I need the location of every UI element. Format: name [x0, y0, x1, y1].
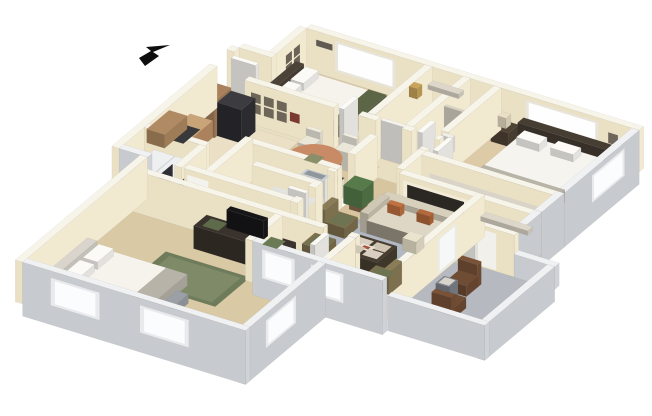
bed2-tv-east-face — [264, 218, 268, 240]
entry-direction-arrow — [139, 45, 170, 66]
bedroom2-west-wall-south-face — [15, 260, 22, 304]
balcony-south-parapet-east-face — [485, 322, 490, 361]
floorplan-3d-render — [0, 0, 652, 416]
floorplan-canvas — [0, 0, 652, 416]
living-south-wall-east-face — [382, 277, 387, 335]
balcony-north-parapet-east-face — [555, 263, 560, 290]
bedroom2-closet-west-wall-south-face — [245, 239, 252, 283]
hall-north-wall-a-east-face — [334, 104, 339, 150]
bedroom2-south-wall-east-face — [246, 327, 251, 385]
exterior-ne-wall-east-face — [639, 127, 644, 173]
